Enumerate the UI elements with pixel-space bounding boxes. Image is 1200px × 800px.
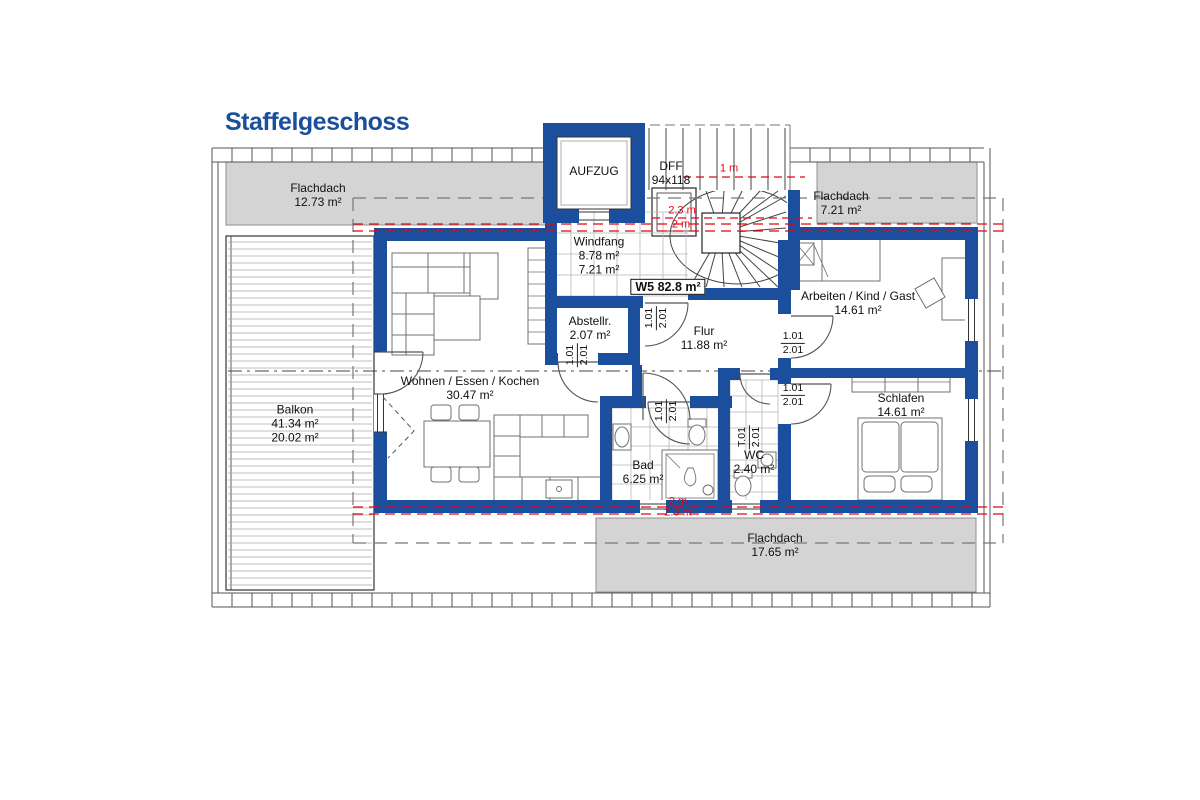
dimension-stair-width-1: 2.3 m xyxy=(668,206,696,217)
label-dff-roof-window: DFF 94x118 xyxy=(652,160,690,188)
dimension-stair-width-2: 2 m xyxy=(672,220,690,231)
floorplan: Staffelgeschoss Flachdach 12.73 m² Flach… xyxy=(0,0,1200,800)
room-label-wohnen-essen-kochen: Wohnen / Essen / Kochen 30.47 m² xyxy=(401,375,540,403)
room-label-flachdach-top-right: Flachdach 7.21 m² xyxy=(813,190,868,218)
room-label-wc: WC 2.40 m² xyxy=(734,449,775,477)
room-label-arbeiten-kind-gast: Arbeiten / Kind / Gast 14.61 m² xyxy=(801,290,915,318)
page-title: Staffelgeschoss xyxy=(225,108,409,137)
door-label-schlafen: 1.012.01 xyxy=(781,382,805,408)
door-label-arbeiten: 1.012.01 xyxy=(781,330,805,356)
room-label-flachdach-top-left: Flachdach 12.73 m² xyxy=(290,182,345,210)
room-label-abstellraum: Abstellr. 2.07 m² xyxy=(569,315,612,343)
unit-label-w5: W5 82.8 m² xyxy=(630,279,705,295)
room-label-flur: Flur 11.88 m² xyxy=(681,325,727,353)
door-label-wc: T.012.01 xyxy=(736,425,762,449)
floorplan-drawing xyxy=(0,0,1200,800)
room-label-bad: Bad 6.25 m² xyxy=(623,459,664,487)
room-label-schlafen: Schlafen 14.61 m² xyxy=(877,392,924,420)
room-label-flachdach-bottom: Flachdach 17.65 m² xyxy=(747,532,802,560)
dimension-stair-top: 1 m xyxy=(720,164,738,175)
room-label-windfang: Windfang 8.78 m² 7.21 m² xyxy=(574,235,625,276)
room-label-balkon: Balkon 41.34 m² 20.02 m² xyxy=(271,403,318,444)
room-label-aufzug: AUFZUG xyxy=(569,165,618,179)
door-label-entry: 1.012.01 xyxy=(643,306,669,330)
door-label-abstellraum: 1.012.01 xyxy=(564,343,590,367)
door-label-bad: 1.012.01 xyxy=(653,399,679,423)
dimension-bottom-width-2: 2.3 m xyxy=(664,508,692,519)
